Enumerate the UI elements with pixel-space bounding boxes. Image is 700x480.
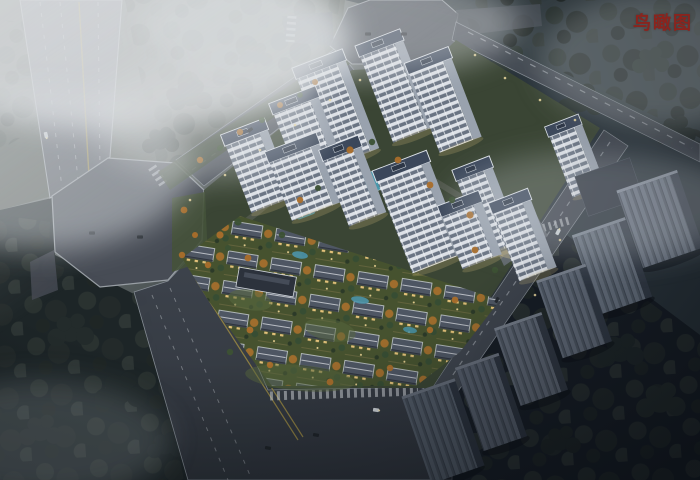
screenshot-root: 鸟瞰图: [0, 0, 700, 480]
atmosphere-haze: [0, 0, 700, 480]
aerial-render: [0, 0, 700, 480]
page-title: 鸟瞰图: [633, 9, 693, 35]
